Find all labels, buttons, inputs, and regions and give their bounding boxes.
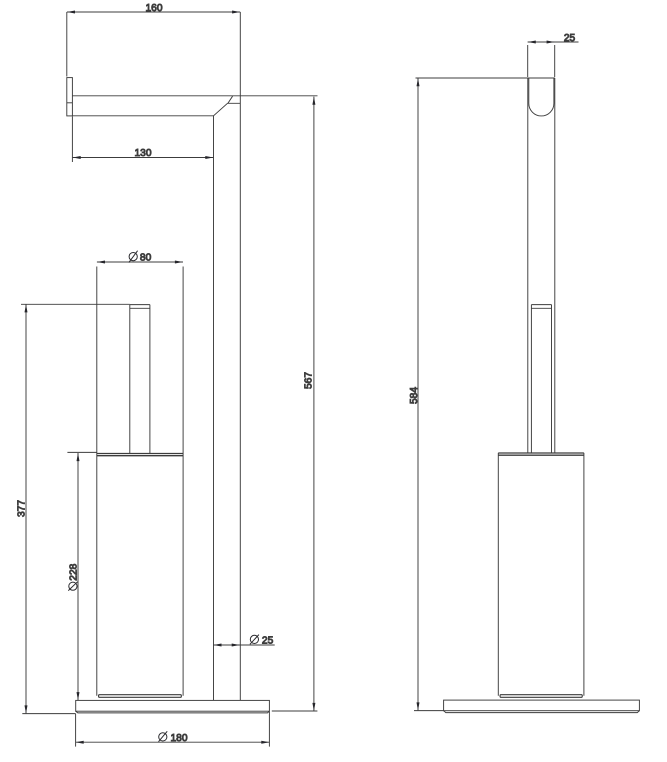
svg-text:377: 377 [16, 500, 27, 517]
svg-text:25: 25 [262, 635, 274, 646]
svg-text:584: 584 [409, 387, 420, 404]
svg-text:80: 80 [140, 253, 152, 264]
svg-text:567: 567 [304, 372, 315, 389]
svg-text:160: 160 [146, 3, 163, 14]
svg-text:25: 25 [564, 33, 576, 44]
svg-text:130: 130 [135, 148, 152, 159]
svg-text:228: 228 [69, 563, 80, 580]
svg-text:180: 180 [171, 733, 188, 744]
